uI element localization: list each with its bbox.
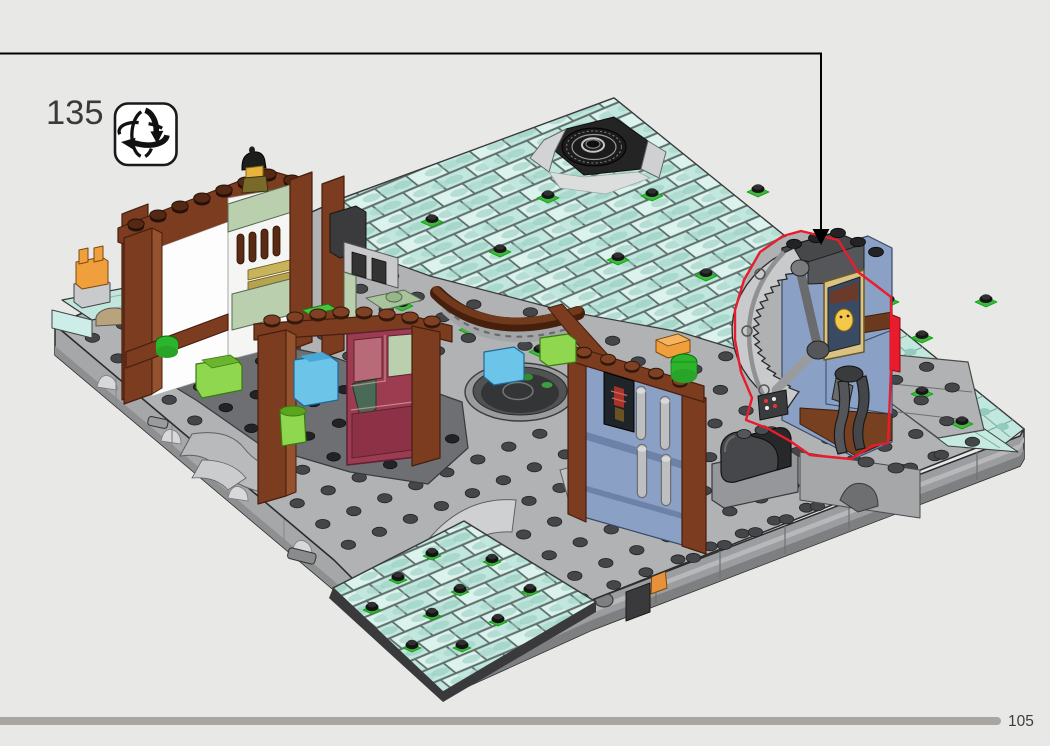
svg-text:135: 135 bbox=[46, 94, 104, 132]
svg-text:105: 105 bbox=[1008, 713, 1034, 730]
